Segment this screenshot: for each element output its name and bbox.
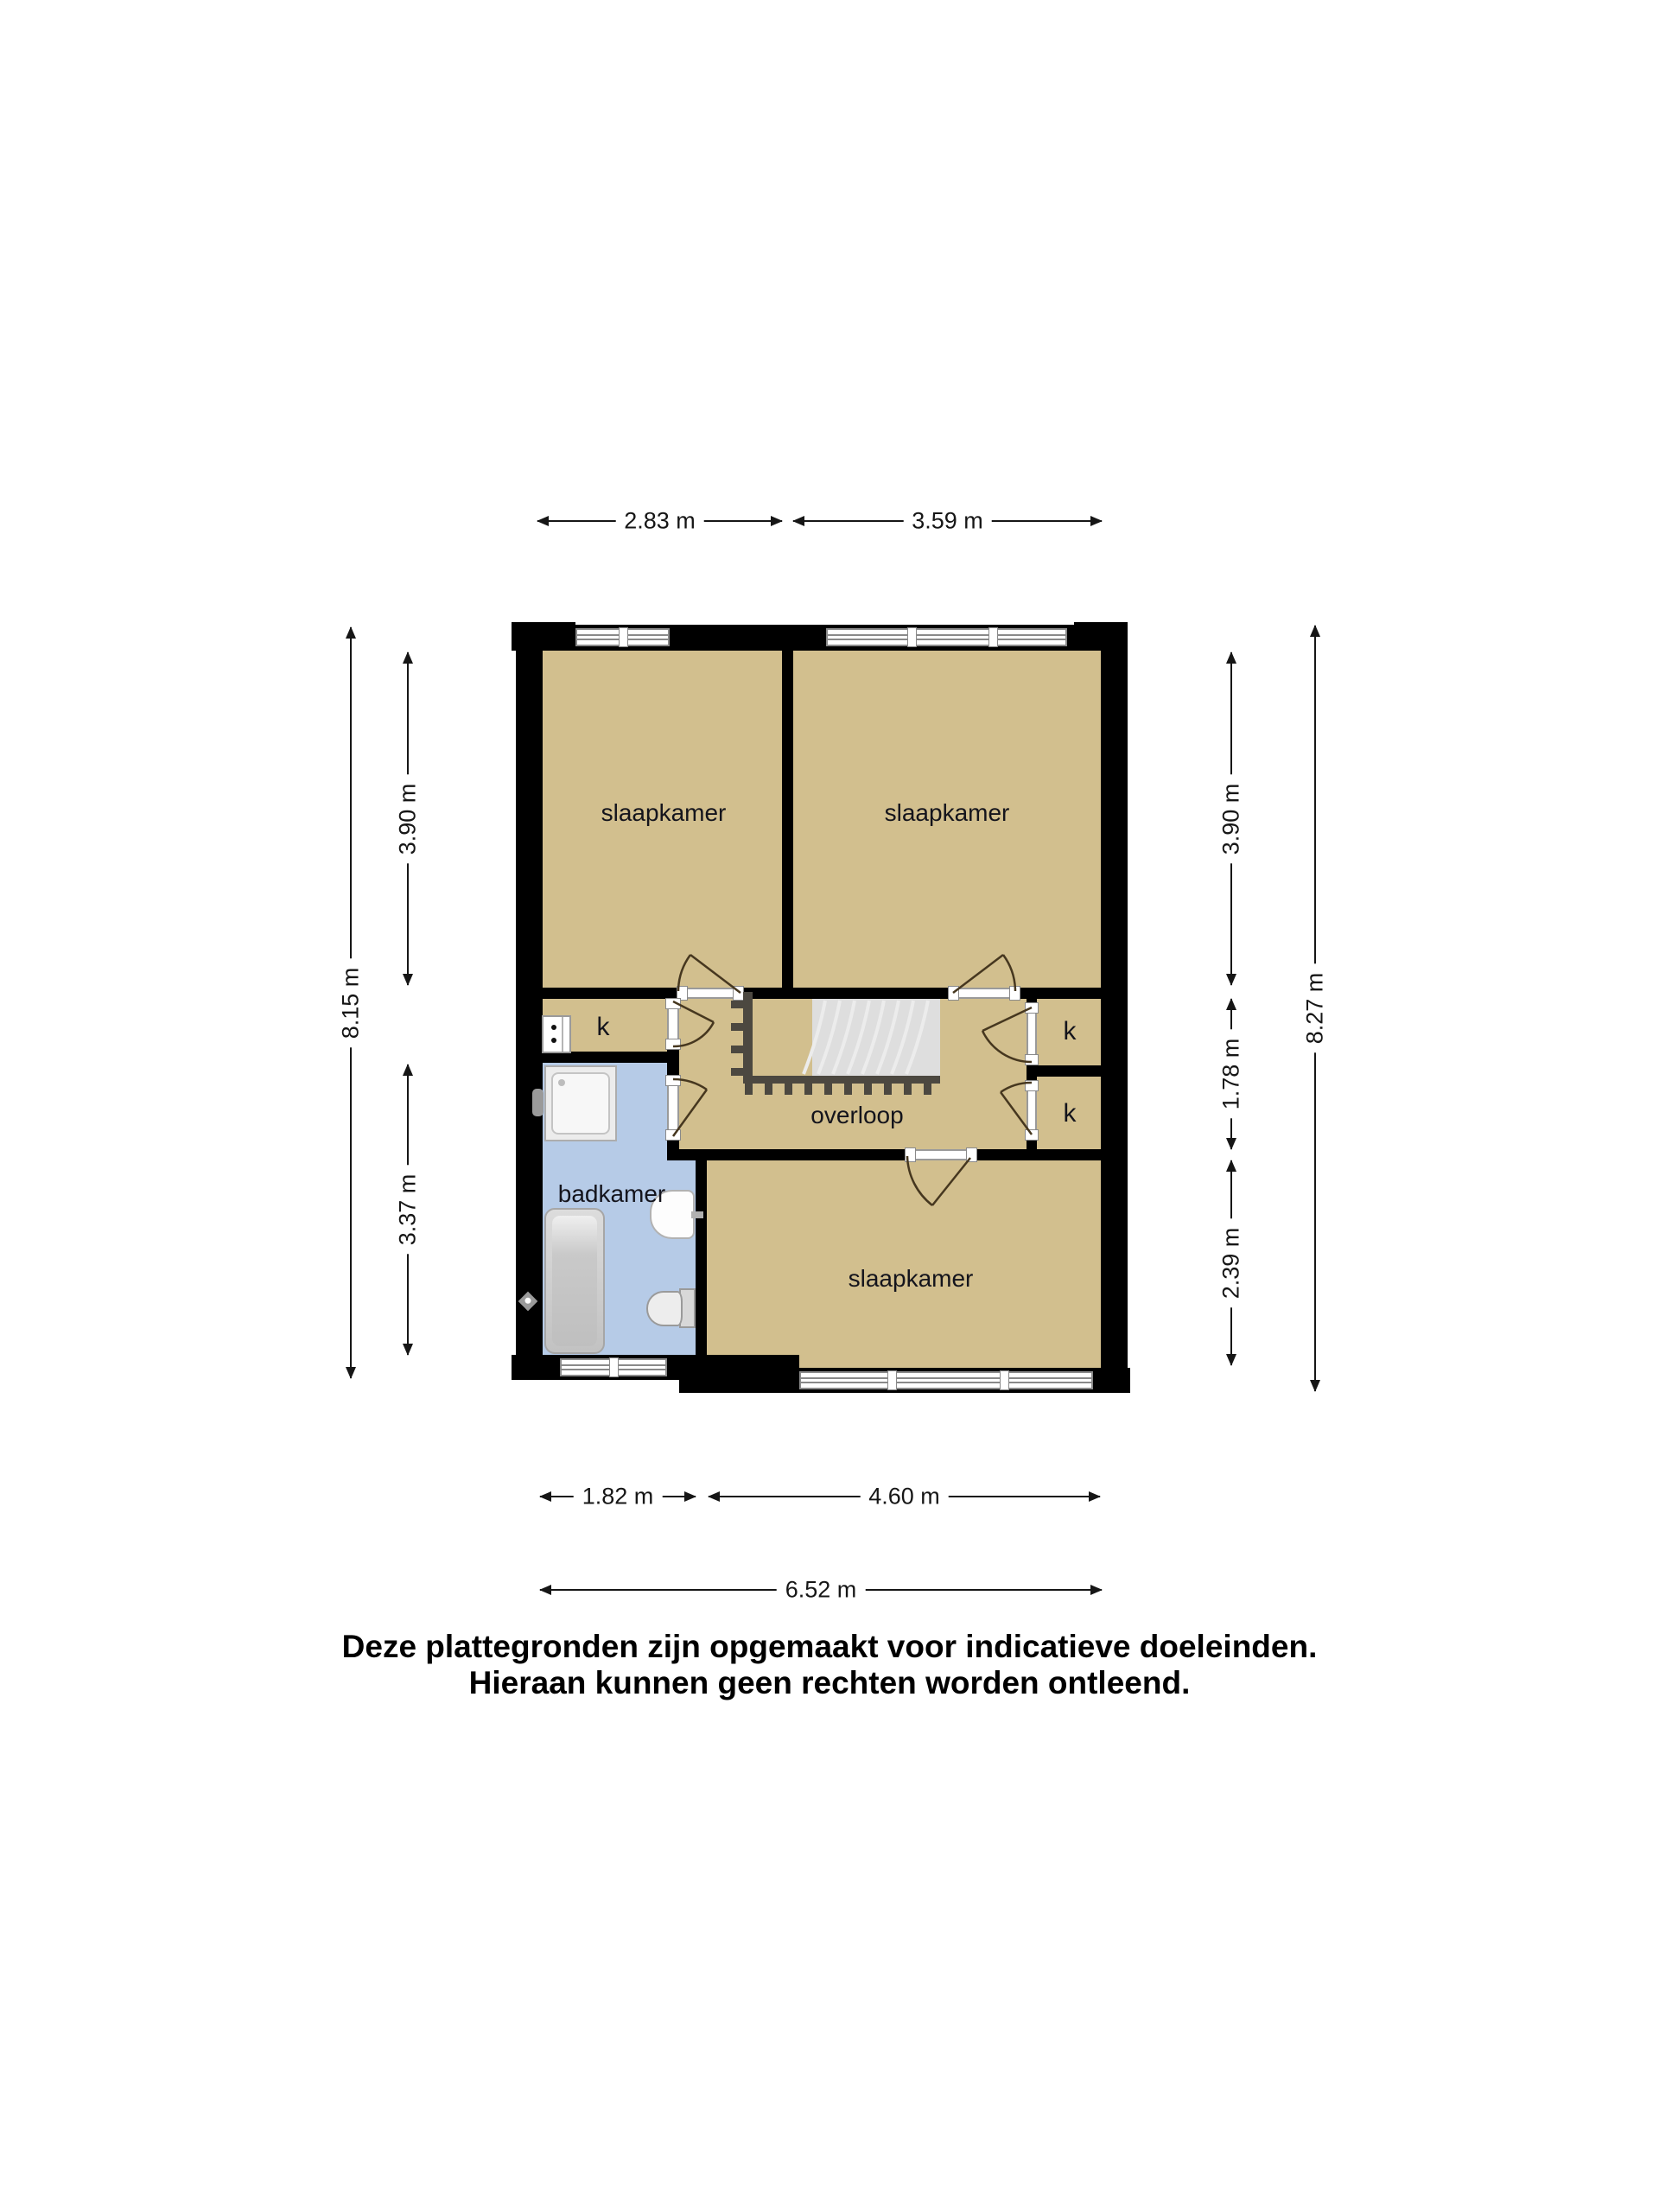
door-opening-bedroom-top-left (679, 988, 741, 999)
window-bedroom-top-right (826, 628, 1067, 646)
window-glazing-line (801, 1377, 1091, 1379)
boiler-seam (562, 1017, 563, 1052)
room-label-closet-right-top: k (1064, 1017, 1077, 1046)
window-bedroom-bottom (799, 1371, 1093, 1389)
room-label-bedroom-bottom: slaapkamer (849, 1265, 974, 1293)
shower-drain (558, 1079, 565, 1086)
dimension-label: 3.59 m (903, 507, 992, 536)
door-opening-bedroom-top-right (950, 988, 1018, 999)
window-bedroom-top-left (575, 628, 670, 646)
boiler-knob (551, 1038, 556, 1043)
stair-treads (812, 999, 940, 1076)
dimension-right-total-height: 8.27 m (1314, 626, 1316, 1391)
dimension-label: 3.90 m (394, 774, 423, 863)
boiler-knob (551, 1025, 556, 1030)
dimension-left-bedroom-height: 3.90 m (407, 652, 409, 985)
floorplan-page: { "floorplan": { "rooms": { "bedroom_top… (0, 0, 1659, 2212)
toilet-bowl-icon (646, 1291, 683, 1326)
wall-bottom-step (679, 1355, 799, 1393)
shower-icon (544, 1065, 617, 1141)
dimension-bottom-bedroom-width: 4.60 m (709, 1496, 1100, 1497)
disclaimer-line-1: Deze plattegronden zijn opgemaakt voor i… (0, 1629, 1659, 1665)
dimension-label: 1.82 m (574, 1483, 663, 1511)
room-label-bathroom: badkamer (558, 1180, 666, 1208)
window-mullion (609, 1357, 619, 1377)
stair-railing-posts-left (731, 1001, 743, 1078)
room-label-closet-right-bottom: k (1064, 1099, 1077, 1128)
dimension-label: 3.37 m (394, 1166, 423, 1255)
room-label-landing: overloop (810, 1102, 903, 1129)
dimension-right-bedroom-height: 3.90 m (1230, 652, 1232, 985)
window-glazing-line (801, 1382, 1091, 1383)
wall-v-between-top-bedrooms (782, 651, 793, 988)
dimension-label: 2.39 m (1217, 1218, 1246, 1307)
dimension-bottom-bathroom-width: 1.82 m (540, 1496, 696, 1497)
wall-v-bathroom-bedroom (696, 1160, 707, 1368)
window-mullion (619, 627, 628, 647)
dimension-top-right-width: 3.59 m (793, 520, 1102, 522)
dimension-label: 1.78 m (1217, 1030, 1246, 1119)
disclaimer-line-2: Hieraan kunnen geen rechten worden ontle… (0, 1665, 1659, 1701)
window-mullion (988, 627, 998, 647)
wall-h-closets-right-divider (1027, 1065, 1101, 1077)
window-bathroom (560, 1358, 667, 1376)
dimension-label: 4.60 m (860, 1483, 949, 1511)
bathtub-tap-dot (524, 1296, 532, 1305)
dimension-label: 2.83 m (615, 507, 704, 536)
dimension-right-landing-height: 1.78 m (1230, 999, 1232, 1149)
window-mullion (887, 1370, 897, 1390)
room-label-closet-left: k (597, 1013, 610, 1042)
room-label-bedroom-top-right: slaapkamer (885, 799, 1010, 827)
door-opening-closet-left (667, 1001, 679, 1047)
dimension-label: 8.15 m (337, 958, 365, 1047)
dimension-bottom-total-width: 6.52 m (540, 1589, 1102, 1591)
dimension-label: 3.90 m (1217, 774, 1246, 863)
bathtub-icon (544, 1208, 605, 1354)
boiler-icon (542, 1015, 571, 1053)
door-opening-closet-right-top (1027, 1005, 1037, 1063)
dimension-top-left-width: 2.83 m (537, 520, 782, 522)
window-mullion (907, 627, 917, 647)
dimension-label: 6.52 m (777, 1576, 866, 1605)
dimension-left-bathroom-height: 3.37 m (407, 1065, 409, 1355)
bathtub-basin (552, 1216, 597, 1346)
dimension-left-total-height: 8.15 m (350, 627, 352, 1378)
window-glazing-line (828, 639, 1065, 640)
sink-tap (691, 1211, 703, 1218)
wall-left (516, 625, 543, 1380)
door-opening-closet-right-bottom (1027, 1083, 1037, 1138)
stair-railing-posts-bottom (745, 1084, 940, 1095)
disclaimer-text: Deze plattegronden zijn opgemaakt voor i… (0, 1629, 1659, 1701)
stair-railing-vertical (743, 992, 753, 1083)
stair-railing-horizontal (743, 1076, 940, 1084)
window-glazing-line (828, 634, 1065, 636)
room-label-bedroom-top-left: slaapkamer (601, 799, 727, 827)
window-mullion (1000, 1370, 1009, 1390)
dimension-right-bottom-bedroom-height: 2.39 m (1230, 1160, 1232, 1365)
wall-right (1101, 625, 1128, 1393)
door-opening-bedroom-bottom (907, 1149, 975, 1160)
wall-h-landing-bottom (679, 1149, 1101, 1160)
dimension-label: 8.27 m (1301, 964, 1330, 1053)
shower-tap-icon (532, 1089, 543, 1116)
door-opening-bathroom (667, 1077, 679, 1138)
